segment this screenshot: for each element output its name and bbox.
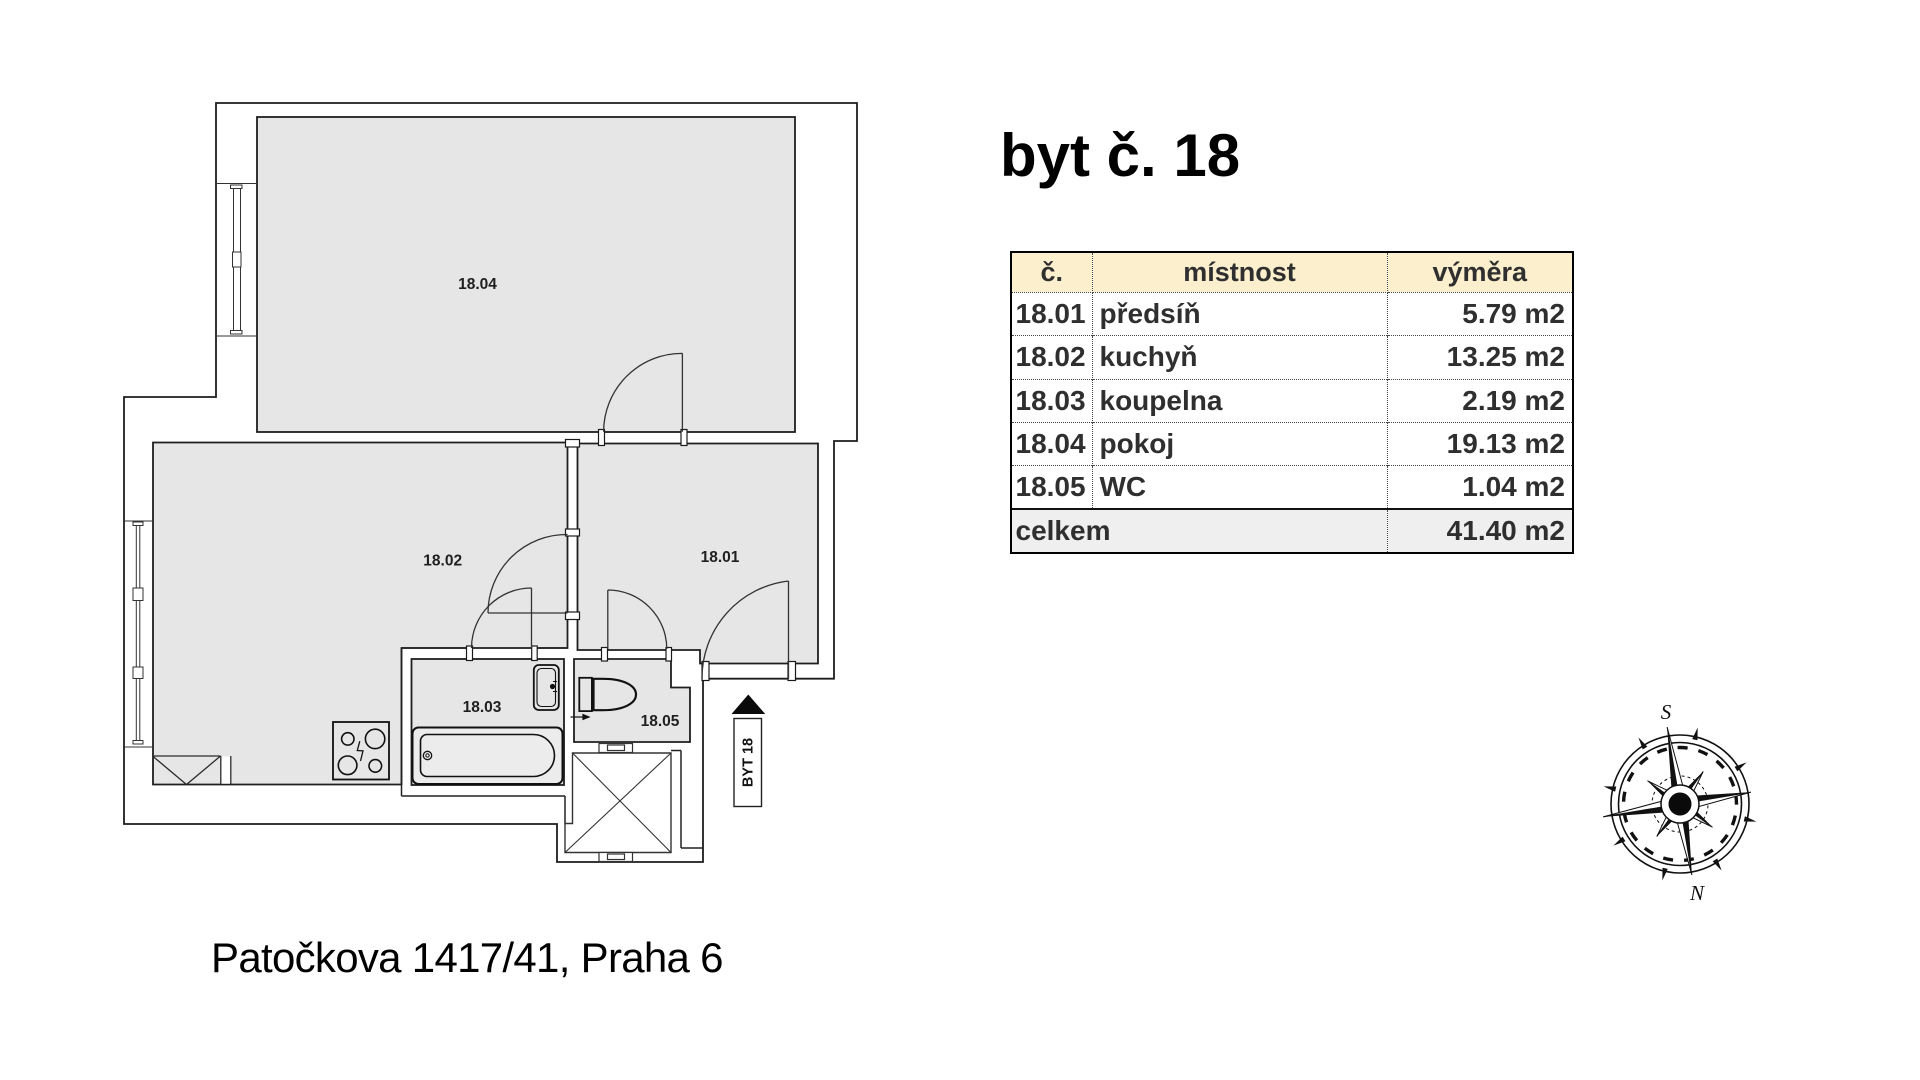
svg-text:N: N [1689,881,1705,905]
svg-text:18.03: 18.03 [463,699,502,716]
svg-text:BYT 18: BYT 18 [740,738,756,787]
svg-text:18.02: 18.02 [423,553,462,570]
svg-text:S: S [1661,700,1672,724]
svg-text:18.01: 18.01 [701,549,740,566]
svg-text:18.05: 18.05 [641,713,680,730]
svg-text:18.04: 18.04 [458,276,497,293]
